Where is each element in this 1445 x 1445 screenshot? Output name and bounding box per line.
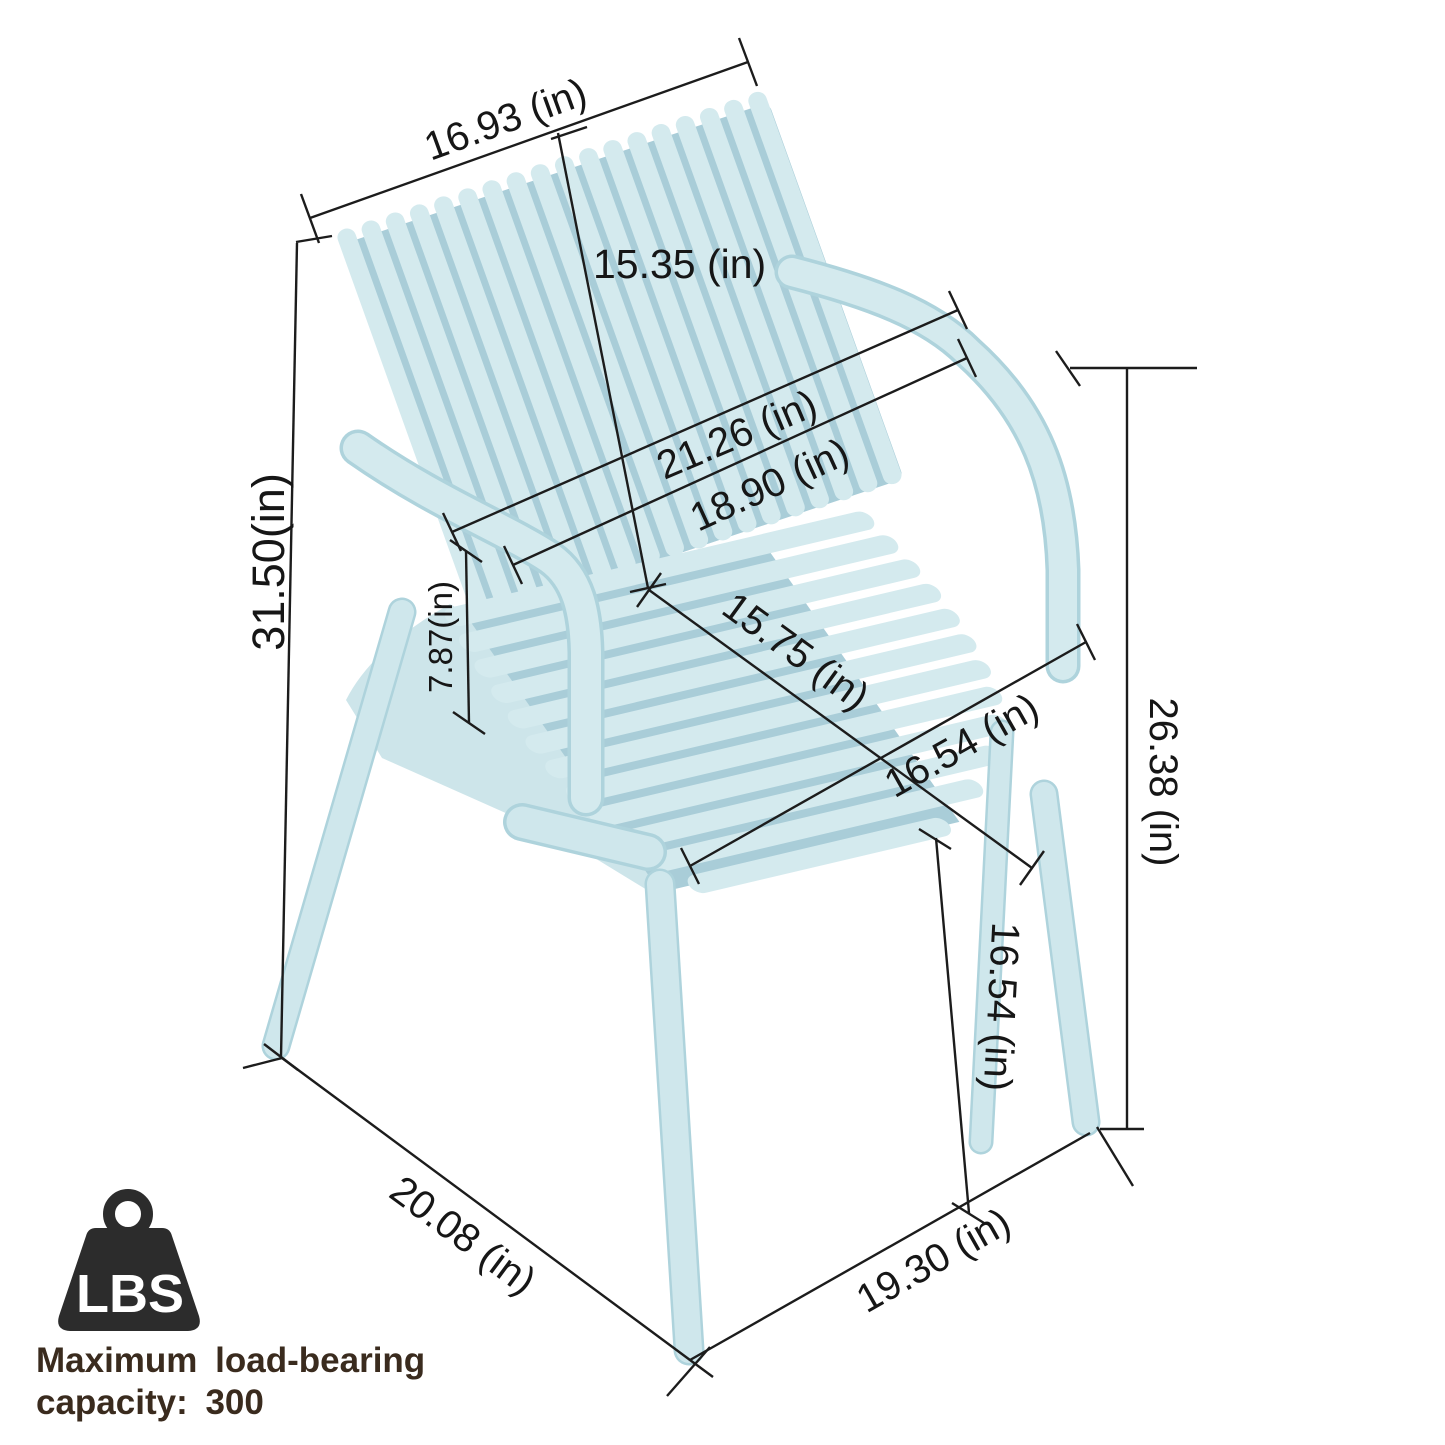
load-caption-line1: Maximum load-bearing [36, 1341, 425, 1380]
chair-leg-rear-left [276, 612, 402, 1046]
dimline-seat-height [919, 829, 984, 1223]
dimline-base-width [690, 1133, 1090, 1360]
label-base-depth: 20.08 (in) [382, 1168, 544, 1304]
label-total-height: 31.50(in) [243, 473, 294, 651]
label-back-height: 15.35 (in) [593, 241, 766, 287]
label-arm-height: 26.38 (in) [1141, 698, 1185, 867]
label-back-top-width: 16.93 (in) [419, 70, 593, 169]
chair-leg-front-left [660, 884, 689, 1350]
load-capacity-badge: LBS Maximum load-bearing capacity: 300 [36, 1195, 425, 1422]
weight-icon-handle [109, 1195, 147, 1233]
diagram-canvas: 16.93 (in) 15.35 (in) 21.26 (in) 18.90 (… [0, 0, 1445, 1445]
dimension-diagram: 16.93 (in) 15.35 (in) 21.26 (in) 18.90 (… [0, 0, 1445, 1445]
chair-backrest [335, 89, 904, 623]
weight-icon-label: LBS [76, 1264, 184, 1324]
label-base-width: 19.30 (in) [849, 1200, 1018, 1322]
load-caption-line2: capacity: 300 [36, 1383, 264, 1422]
label-arm-to-seat: 7.87(in) [422, 581, 459, 693]
label-seat-height: 16.54 (in) [975, 921, 1028, 1092]
chair-leg-front-right [1044, 794, 1086, 1122]
